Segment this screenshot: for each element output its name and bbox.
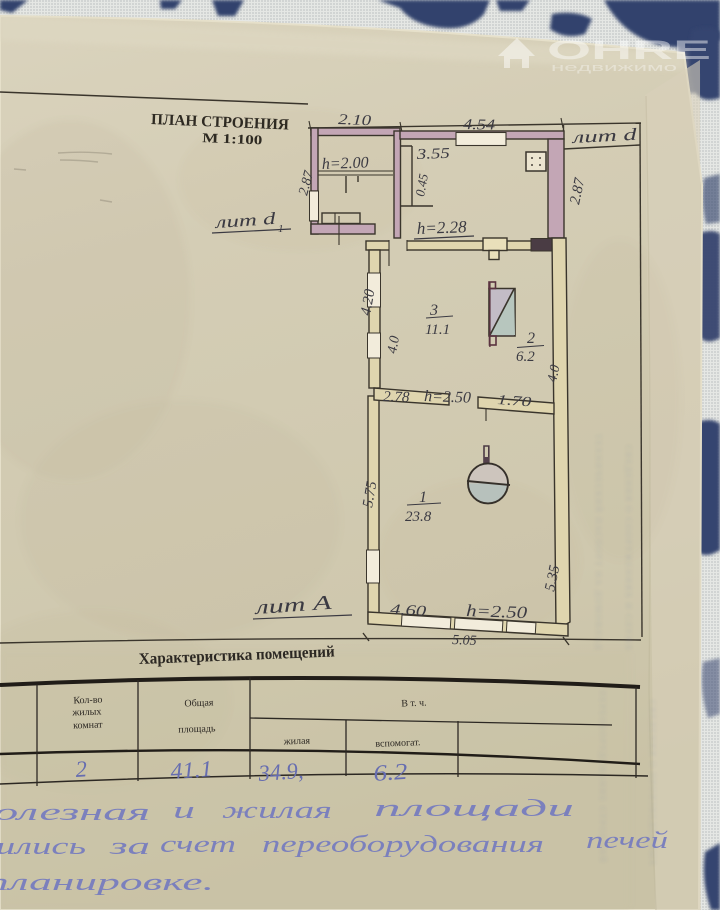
svg-text:h=2.50: h=2.50 — [424, 388, 471, 407]
svg-text:23.8: 23.8 — [405, 509, 432, 525]
svg-text:5.05: 5.05 — [452, 633, 477, 649]
svg-text:3: 3 — [429, 302, 438, 319]
svg-text:h=2.28: h=2.28 — [416, 217, 467, 238]
svg-text:6.2: 6.2 — [373, 759, 409, 786]
svg-text:площади: площади — [374, 796, 574, 822]
svg-text:2: 2 — [75, 756, 88, 782]
svg-text:площадь: площадь — [178, 723, 216, 735]
svg-text:комнат: комнат — [73, 719, 103, 731]
svg-text:4.60: 4.60 — [390, 602, 427, 620]
svg-text:ОНRЕ: ОНRЕ — [547, 35, 711, 65]
svg-text:лит d: лит d — [571, 125, 638, 147]
svg-text:счет: счет — [160, 832, 236, 858]
svg-text:жилых: жилых — [71, 706, 101, 718]
svg-text:печей: печей — [586, 828, 668, 854]
svg-text:ились: ились — [0, 834, 86, 860]
svg-text:и: и — [173, 798, 195, 824]
svg-text:Кол-во: Кол-во — [73, 694, 102, 706]
svg-text:3.55: 3.55 — [415, 146, 450, 163]
svg-text:11.1: 11.1 — [425, 322, 450, 338]
svg-text:41.1: 41.1 — [170, 756, 214, 784]
svg-text:2: 2 — [527, 330, 535, 347]
svg-text:СВЕДЕНИЯ О СООРУЖЕНИЯХ И СЛУЖБ: СВЕДЕНИЯ О СООРУЖЕНИЯХ И СЛУЖБ — [624, 445, 634, 651]
svg-text:вспомогат.: вспомогат. — [375, 737, 420, 750]
svg-text:планировке.: планировке. — [0, 870, 214, 896]
svg-text:h=2.50: h=2.50 — [466, 601, 528, 622]
svg-text:2.10: 2.10 — [338, 112, 372, 129]
svg-text:жилая: жилая — [222, 798, 332, 824]
svg-text:М 1:100: М 1:100 — [202, 130, 263, 147]
svg-text:4.0: 4.0 — [385, 335, 403, 355]
svg-text:жилая: жилая — [283, 736, 311, 748]
svg-text:6.2: 6.2 — [516, 349, 535, 365]
svg-text:2.78: 2.78 — [383, 389, 410, 406]
svg-text:В т. ч.: В т. ч. — [401, 698, 427, 710]
svg-text:ТЕХНИЧЕСКИЙ ПАСПОРТ НА ДОМОВЛА: ТЕХНИЧЕСКИЙ ПАСПОРТ НА ДОМОВЛАД — [594, 434, 604, 651]
svg-text:34.9,: 34.9, — [257, 758, 305, 786]
svg-text:олезная: олезная — [0, 800, 150, 826]
svg-text:1.70: 1.70 — [497, 393, 532, 410]
svg-text:h=2.00: h=2.00 — [322, 154, 369, 173]
svg-text:недвижимо: недвижимо — [551, 62, 677, 74]
svg-text:переоборудования: переоборудования — [262, 832, 544, 858]
svg-text:за: за — [108, 834, 150, 860]
svg-text:Общая: Общая — [184, 697, 214, 709]
